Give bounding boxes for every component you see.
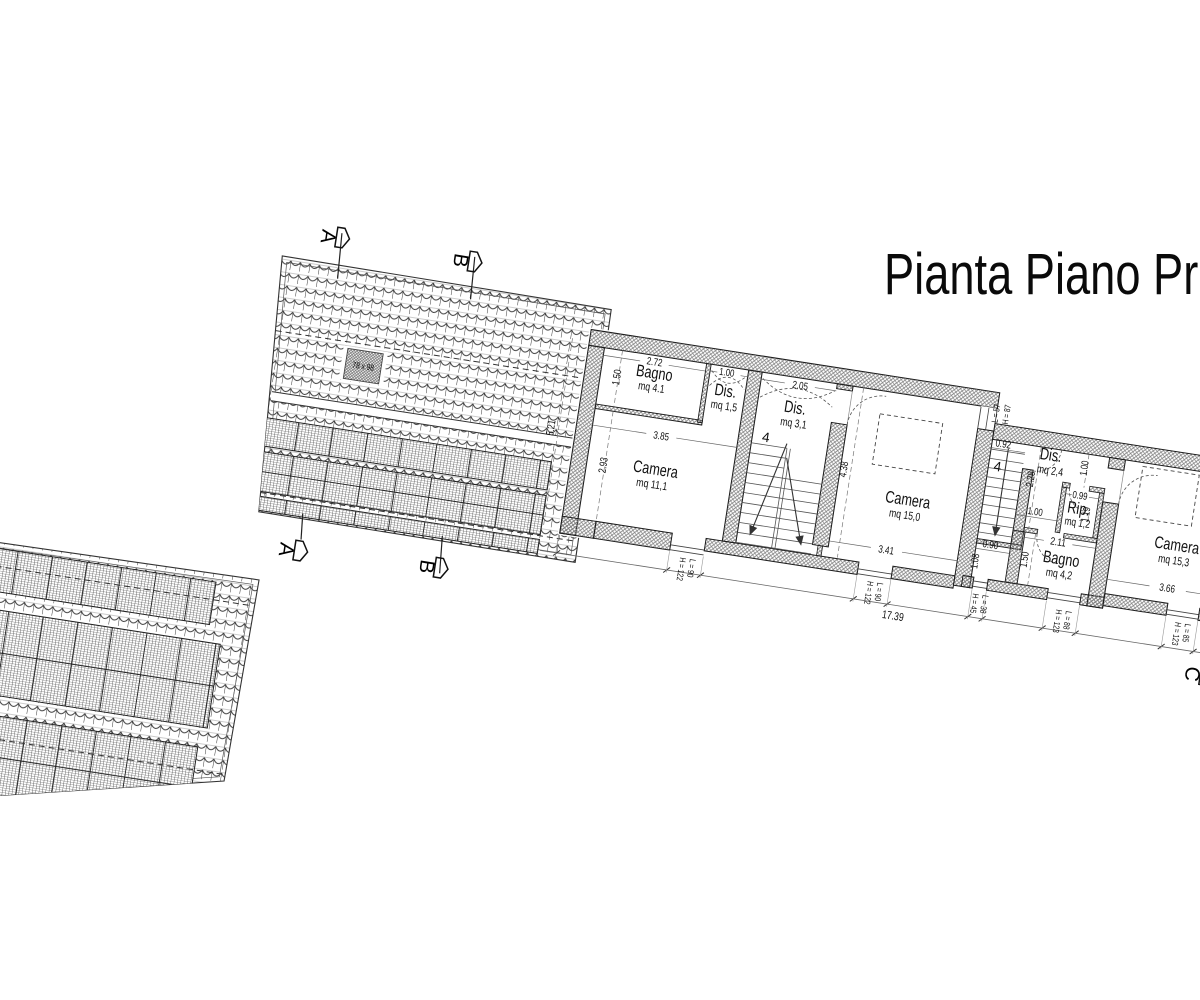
svg-text:Dis.: Dis. [1039, 444, 1064, 466]
svg-text:5.21: 5.21 [544, 419, 558, 436]
svg-text:3.85: 3.85 [652, 429, 669, 443]
svg-text:0.90: 0.90 [982, 538, 999, 552]
svg-text:1.00: 1.00 [1027, 506, 1044, 519]
svg-text:1.08: 1.08 [969, 553, 982, 570]
svg-text:1.00: 1.00 [718, 367, 735, 380]
svg-text:Pianta Piano Primo: Pianta Piano Primo [884, 243, 1200, 308]
svg-text:1.00: 1.00 [1079, 460, 1092, 477]
svg-text:1.50: 1.50 [1018, 551, 1032, 568]
svg-text:2.05: 2.05 [791, 379, 808, 393]
svg-text:2.93: 2.93 [597, 456, 611, 473]
svg-text:0.92: 0.92 [995, 437, 1012, 451]
svg-text:1.50: 1.50 [610, 369, 624, 386]
svg-text:4.38: 4.38 [837, 461, 851, 478]
svg-text:3.66: 3.66 [1158, 582, 1175, 596]
svg-text:3.41: 3.41 [877, 543, 894, 557]
svg-text:Dis.: Dis. [783, 397, 808, 419]
